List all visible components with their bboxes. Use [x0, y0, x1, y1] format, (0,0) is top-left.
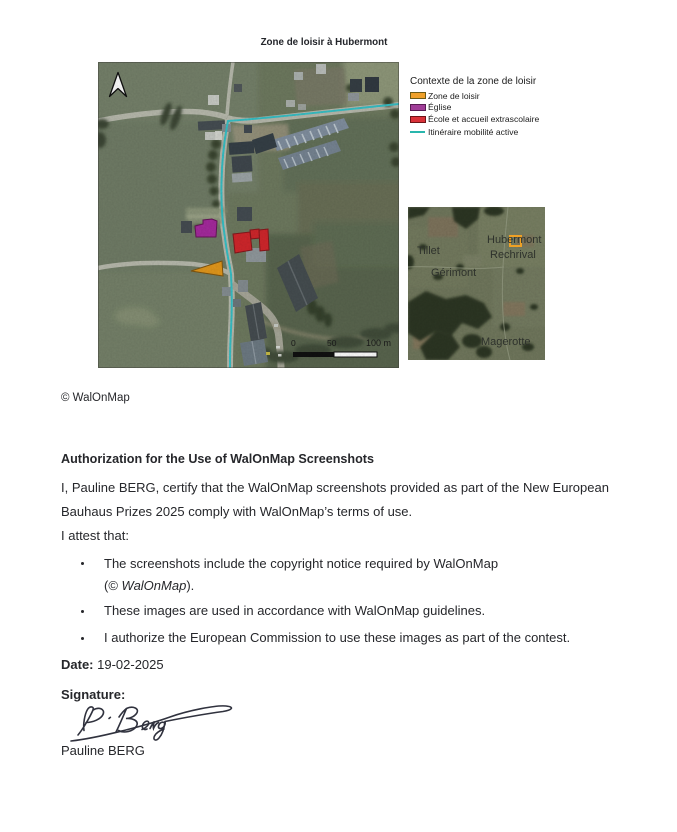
svg-text:Tillet: Tillet — [417, 245, 440, 257]
svg-text:Hubermont: Hubermont — [487, 234, 541, 246]
svg-text:Rechrival: Rechrival — [490, 249, 536, 261]
svg-text:Gérimont: Gérimont — [431, 267, 476, 279]
svg-text:Magerotte: Magerotte — [481, 336, 531, 348]
